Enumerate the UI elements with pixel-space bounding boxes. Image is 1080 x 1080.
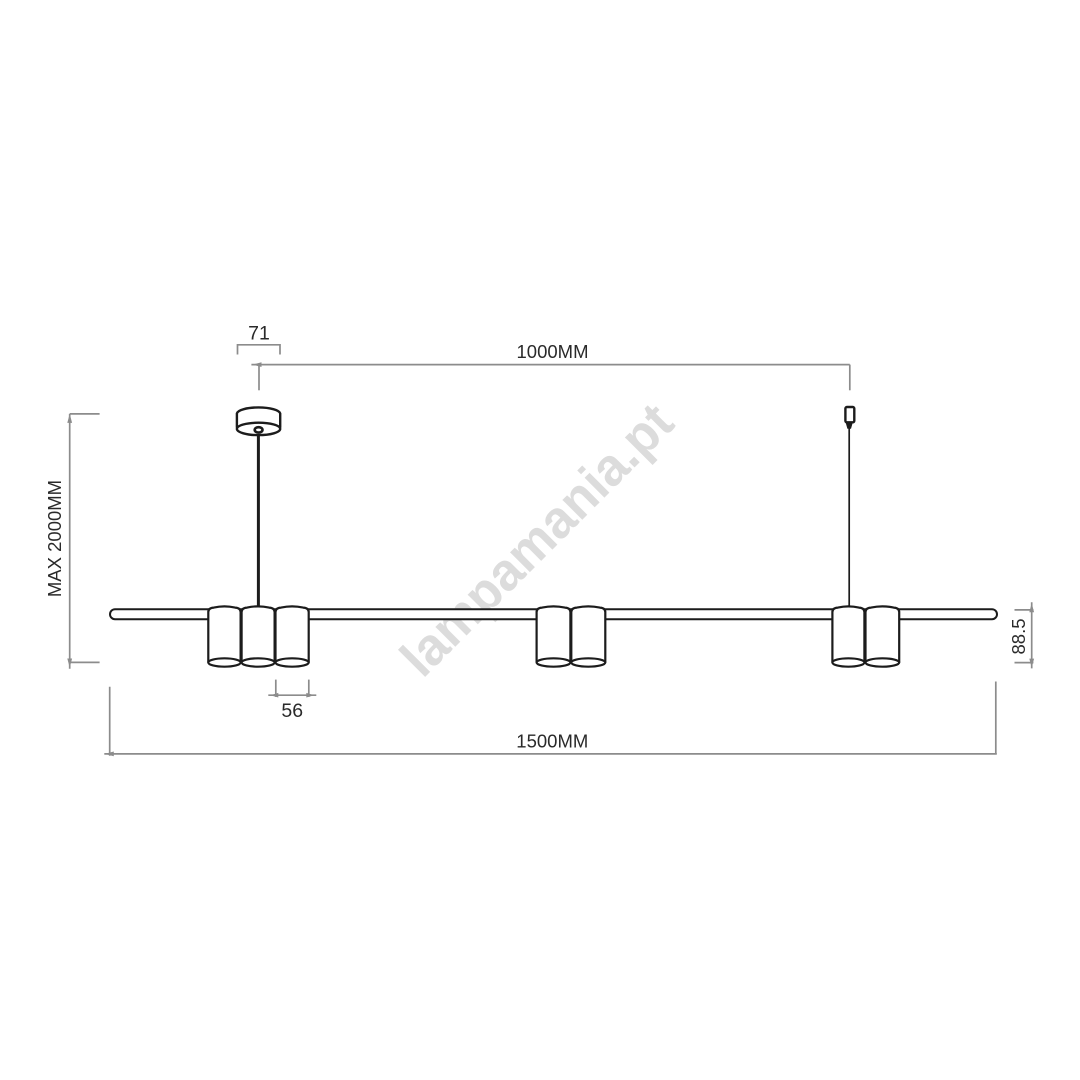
svg-text:88.5: 88.5: [1008, 618, 1029, 654]
svg-text:1500MM: 1500MM: [516, 730, 588, 751]
svg-text:71: 71: [248, 323, 270, 345]
svg-text:56: 56: [281, 700, 303, 722]
svg-text:1000MM: 1000MM: [517, 341, 589, 362]
svg-text:MAX 2000MM: MAX 2000MM: [44, 480, 65, 597]
